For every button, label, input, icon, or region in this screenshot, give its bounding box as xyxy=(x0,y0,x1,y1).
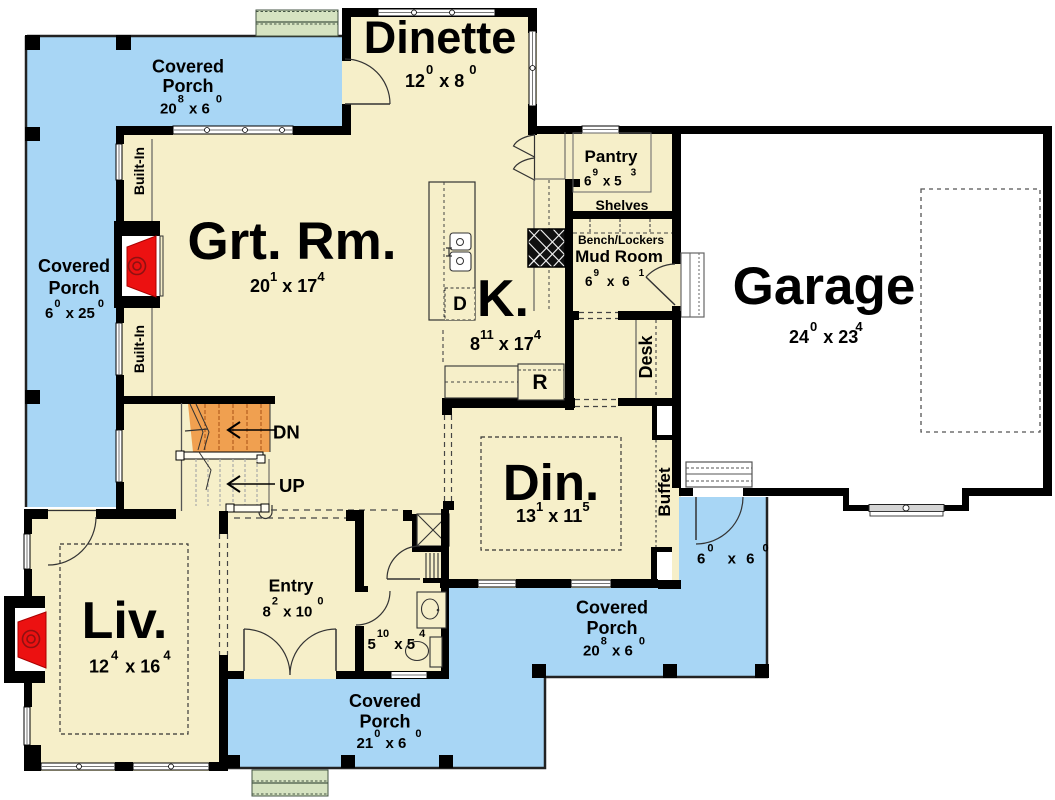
svg-text:K.: K. xyxy=(477,270,529,328)
svg-text:Garage: Garage xyxy=(733,257,916,316)
svg-text:UP: UP xyxy=(279,475,305,496)
svg-text:Bench/Lockers: Bench/Lockers xyxy=(578,233,664,247)
svg-text:Entry: Entry xyxy=(269,576,314,596)
svg-text:Porch: Porch xyxy=(359,712,410,732)
svg-text:Covered: Covered xyxy=(576,598,648,618)
svg-text:DN: DN xyxy=(273,422,300,443)
svg-text:Dinette: Dinette xyxy=(364,12,517,63)
svg-text:R: R xyxy=(532,371,547,394)
svg-text:Covered: Covered xyxy=(38,256,110,276)
svg-text:Covered: Covered xyxy=(349,691,421,711)
svg-text:Built-In: Built-In xyxy=(131,325,147,373)
svg-text:Desk: Desk xyxy=(636,334,656,378)
svg-text:D: D xyxy=(453,294,467,315)
svg-text:Porch: Porch xyxy=(48,278,99,298)
svg-text:Shelves: Shelves xyxy=(596,197,649,213)
svg-text:Porch: Porch xyxy=(162,76,213,96)
svg-text:Grt. Rm.: Grt. Rm. xyxy=(187,212,396,271)
svg-text:Built-In: Built-In xyxy=(131,147,147,195)
svg-text:Buffet: Buffet xyxy=(655,467,674,516)
svg-text:Liv.: Liv. xyxy=(82,592,168,650)
svg-text:Mud Room: Mud Room xyxy=(575,247,663,266)
svg-text:Porch: Porch xyxy=(586,618,637,638)
svg-text:Pantry: Pantry xyxy=(585,147,638,166)
svg-text:Covered: Covered xyxy=(152,57,224,77)
